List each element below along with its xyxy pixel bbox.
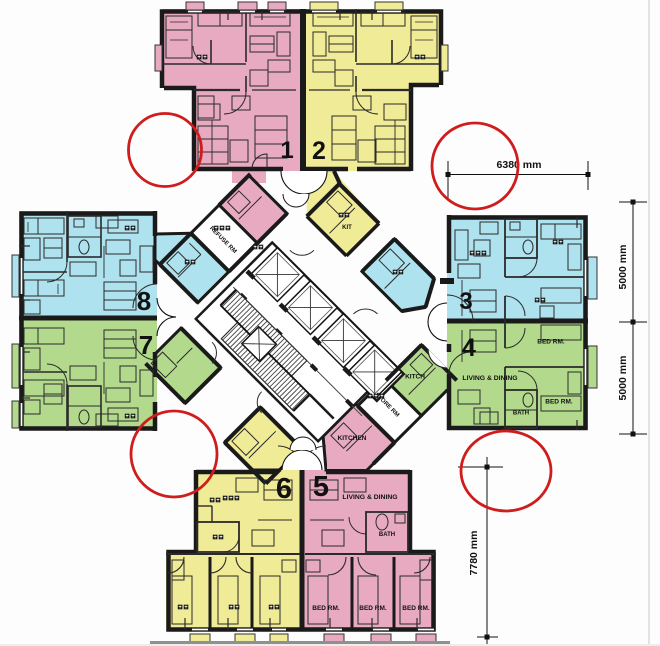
svg-text:BATH: BATH	[379, 532, 395, 538]
svg-text:KITCH: KITCH	[405, 374, 425, 381]
svg-text:KIT: KIT	[342, 225, 352, 231]
svg-text:KITCHEN: KITCHEN	[338, 435, 367, 442]
svg-text:BATH: BATH	[513, 411, 529, 417]
svg-text:LIVING & DINING: LIVING & DINING	[462, 375, 517, 382]
svg-text:BED RM.: BED RM.	[545, 399, 573, 406]
svg-text:7780 mm: 7780 mm	[468, 531, 480, 576]
svg-text:BED RM.: BED RM.	[537, 339, 565, 346]
svg-text:7: 7	[139, 330, 153, 360]
svg-text:2: 2	[312, 137, 326, 165]
svg-text:1: 1	[280, 137, 293, 164]
svg-text:5000 mm: 5000 mm	[617, 245, 629, 290]
svg-text:4: 4	[462, 334, 476, 362]
svg-text:BED RM.: BED RM.	[359, 605, 387, 612]
svg-text:6: 6	[276, 473, 292, 505]
svg-text:BED RM.: BED RM.	[312, 605, 340, 612]
svg-text:5: 5	[313, 471, 329, 503]
svg-text:LIVING & DINING: LIVING & DINING	[342, 494, 397, 501]
svg-text:3: 3	[459, 288, 472, 315]
svg-text:8: 8	[137, 286, 151, 316]
svg-text:BED RM.: BED RM.	[402, 605, 430, 612]
svg-text:5000 mm: 5000 mm	[617, 356, 629, 401]
